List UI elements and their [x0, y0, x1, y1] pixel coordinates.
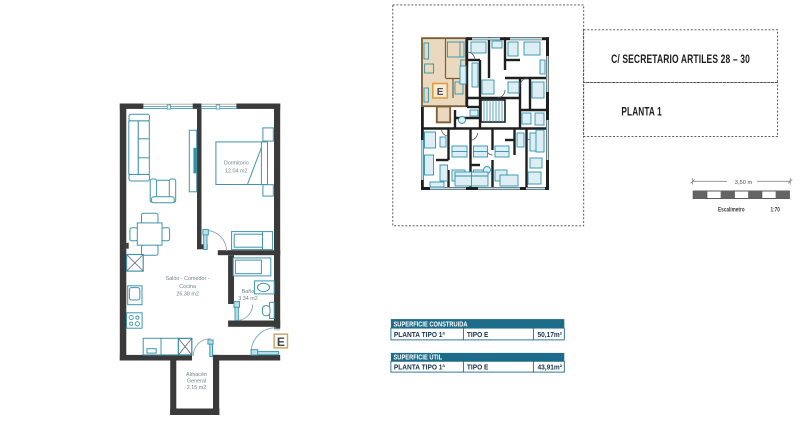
svg-text:3,50 m: 3,50 m [735, 180, 753, 186]
svg-text:Cocina: Cocina [179, 284, 196, 290]
svg-text:General: General [187, 378, 206, 384]
svg-text:3.34 m2: 3.34 m2 [238, 296, 257, 302]
svg-text:50,17m²: 50,17m² [537, 332, 562, 339]
svg-text:TIPO E: TIPO E [467, 332, 489, 339]
svg-text:Baño: Baño [242, 289, 255, 295]
svg-text:Dormitorio: Dormitorio [224, 160, 249, 166]
svg-text:E: E [277, 335, 285, 349]
svg-text:2.15 m2: 2.15 m2 [187, 385, 206, 391]
svg-text:E: E [437, 87, 444, 98]
svg-text:Salón - Comedor -: Salón - Comedor - [166, 276, 210, 282]
svg-text:TIPO E: TIPO E [467, 364, 489, 371]
svg-text:12.04 m2: 12.04 m2 [225, 168, 247, 174]
svg-text:PLANTA TIPO 1ª: PLANTA TIPO 1ª [394, 364, 445, 371]
svg-text:C/ SECRETARIO ARTILES 28 – 30: C/ SECRETARIO ARTILES 28 – 30 [611, 52, 750, 66]
svg-text:Almacén: Almacén [186, 372, 207, 378]
svg-text:PLANTA TIPO 1ª: PLANTA TIPO 1ª [394, 332, 445, 339]
svg-text:Escalímetro: Escalímetro [718, 207, 745, 214]
svg-text:SUPERFICIE ÚTIL: SUPERFICIE ÚTIL [394, 352, 443, 362]
svg-text:PLANTA 1: PLANTA 1 [621, 106, 661, 119]
svg-text:1:70: 1:70 [771, 207, 780, 214]
svg-text:SUPERFICIE CONSTRUIDA: SUPERFICIE CONSTRUIDA [394, 321, 468, 329]
svg-text:43,91m²: 43,91m² [537, 364, 562, 371]
svg-text:26.38 m2: 26.38 m2 [176, 292, 198, 298]
